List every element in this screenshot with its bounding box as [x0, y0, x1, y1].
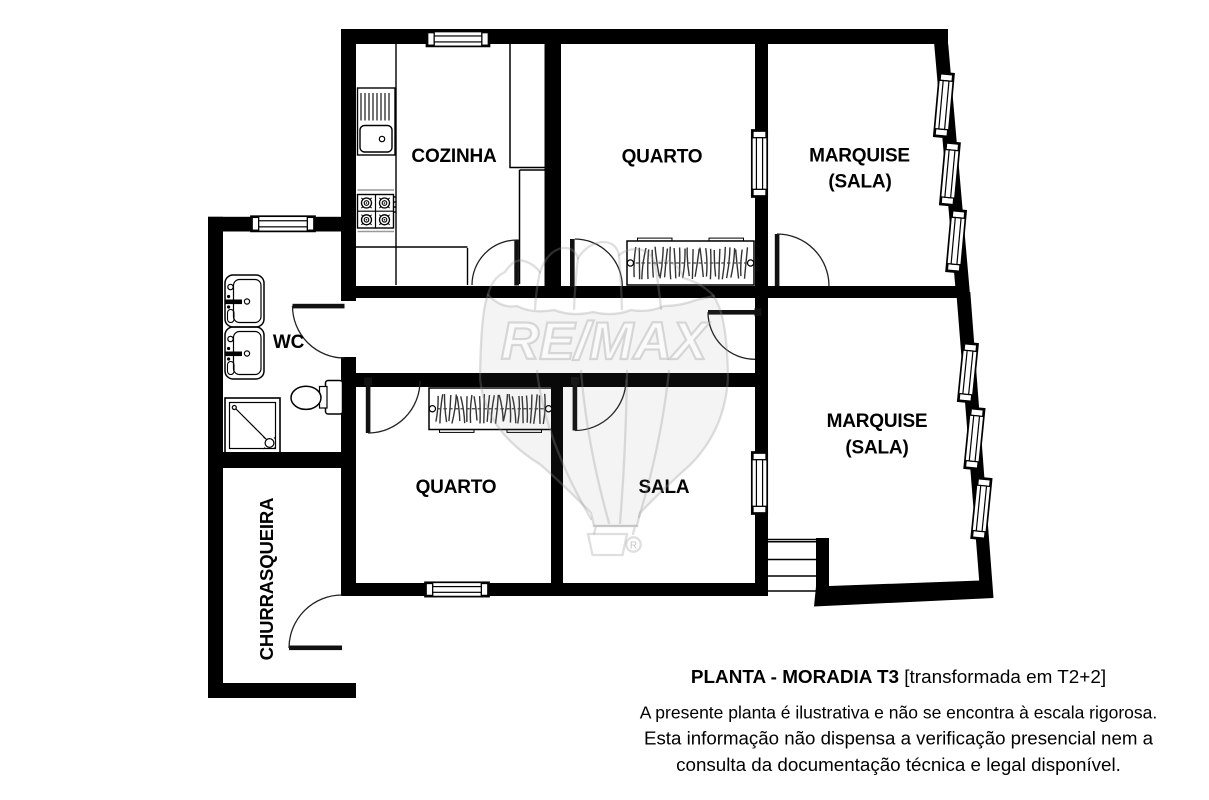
svg-text:COZINHA: COZINHA [411, 146, 497, 167]
svg-text:A presente planta é ilustrativ: A presente planta é ilustrativa e não se… [640, 702, 1158, 722]
svg-text:consulta da documentação técni: consulta da documentação técnica e legal… [676, 754, 1121, 775]
svg-text:WC: WC [273, 332, 305, 353]
svg-text:QUARTO: QUARTO [416, 477, 497, 498]
svg-text:RE/MAX: RE/MAX [501, 312, 710, 371]
svg-text:MARQUISE: MARQUISE [809, 146, 910, 167]
svg-text:PLANTA - MORADIA T3 [transform: PLANTA - MORADIA T3 [transformada em T2+… [691, 667, 1106, 688]
svg-text:(SALA): (SALA) [828, 172, 891, 193]
svg-text:Esta informação não dispensa a: Esta informação não dispensa a verificaç… [644, 728, 1154, 749]
svg-text:(SALA): (SALA) [845, 438, 908, 459]
svg-text:R: R [630, 541, 637, 552]
svg-text:MARQUISE: MARQUISE [827, 411, 928, 432]
svg-text:QUARTO: QUARTO [622, 147, 703, 168]
svg-text:CHURRASQUEIRA: CHURRASQUEIRA [256, 498, 277, 661]
